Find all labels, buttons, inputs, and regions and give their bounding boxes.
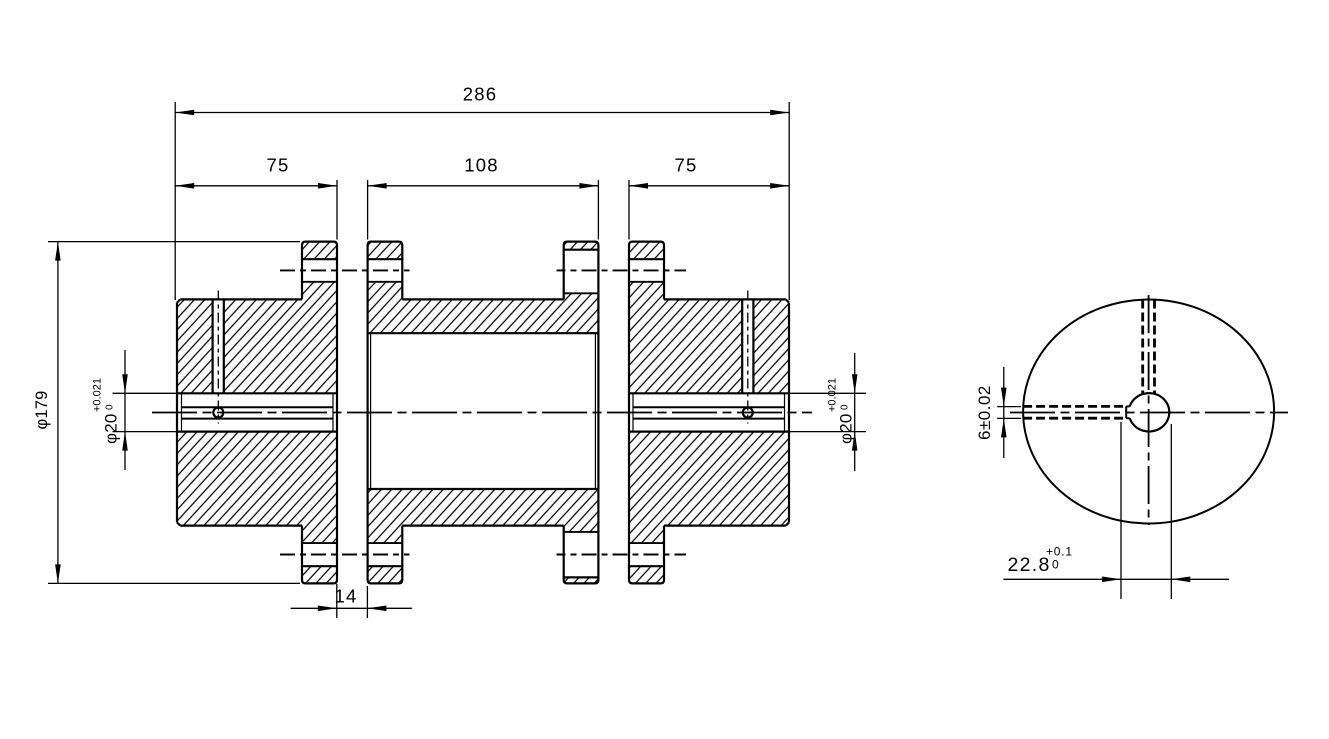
svg-text:22.8: 22.8 bbox=[1008, 554, 1051, 576]
svg-text:φ179: φ179 bbox=[33, 390, 51, 429]
svg-text:0: 0 bbox=[1052, 558, 1059, 572]
svg-text:φ20: φ20 bbox=[102, 413, 121, 444]
svg-text:φ20: φ20 bbox=[837, 413, 856, 444]
svg-text:+0.1: +0.1 bbox=[1046, 545, 1073, 559]
svg-text:0: 0 bbox=[840, 404, 851, 410]
svg-text:108: 108 bbox=[464, 155, 498, 176]
svg-text:75: 75 bbox=[675, 155, 698, 176]
svg-text:0: 0 bbox=[105, 404, 116, 410]
svg-text:75: 75 bbox=[267, 155, 290, 176]
svg-text:14: 14 bbox=[335, 586, 358, 607]
svg-text:286: 286 bbox=[463, 84, 497, 105]
svg-text:6±0.02: 6±0.02 bbox=[975, 385, 994, 440]
svg-text:+0.021: +0.021 bbox=[827, 378, 839, 412]
svg-text:+0.021: +0.021 bbox=[92, 378, 104, 412]
